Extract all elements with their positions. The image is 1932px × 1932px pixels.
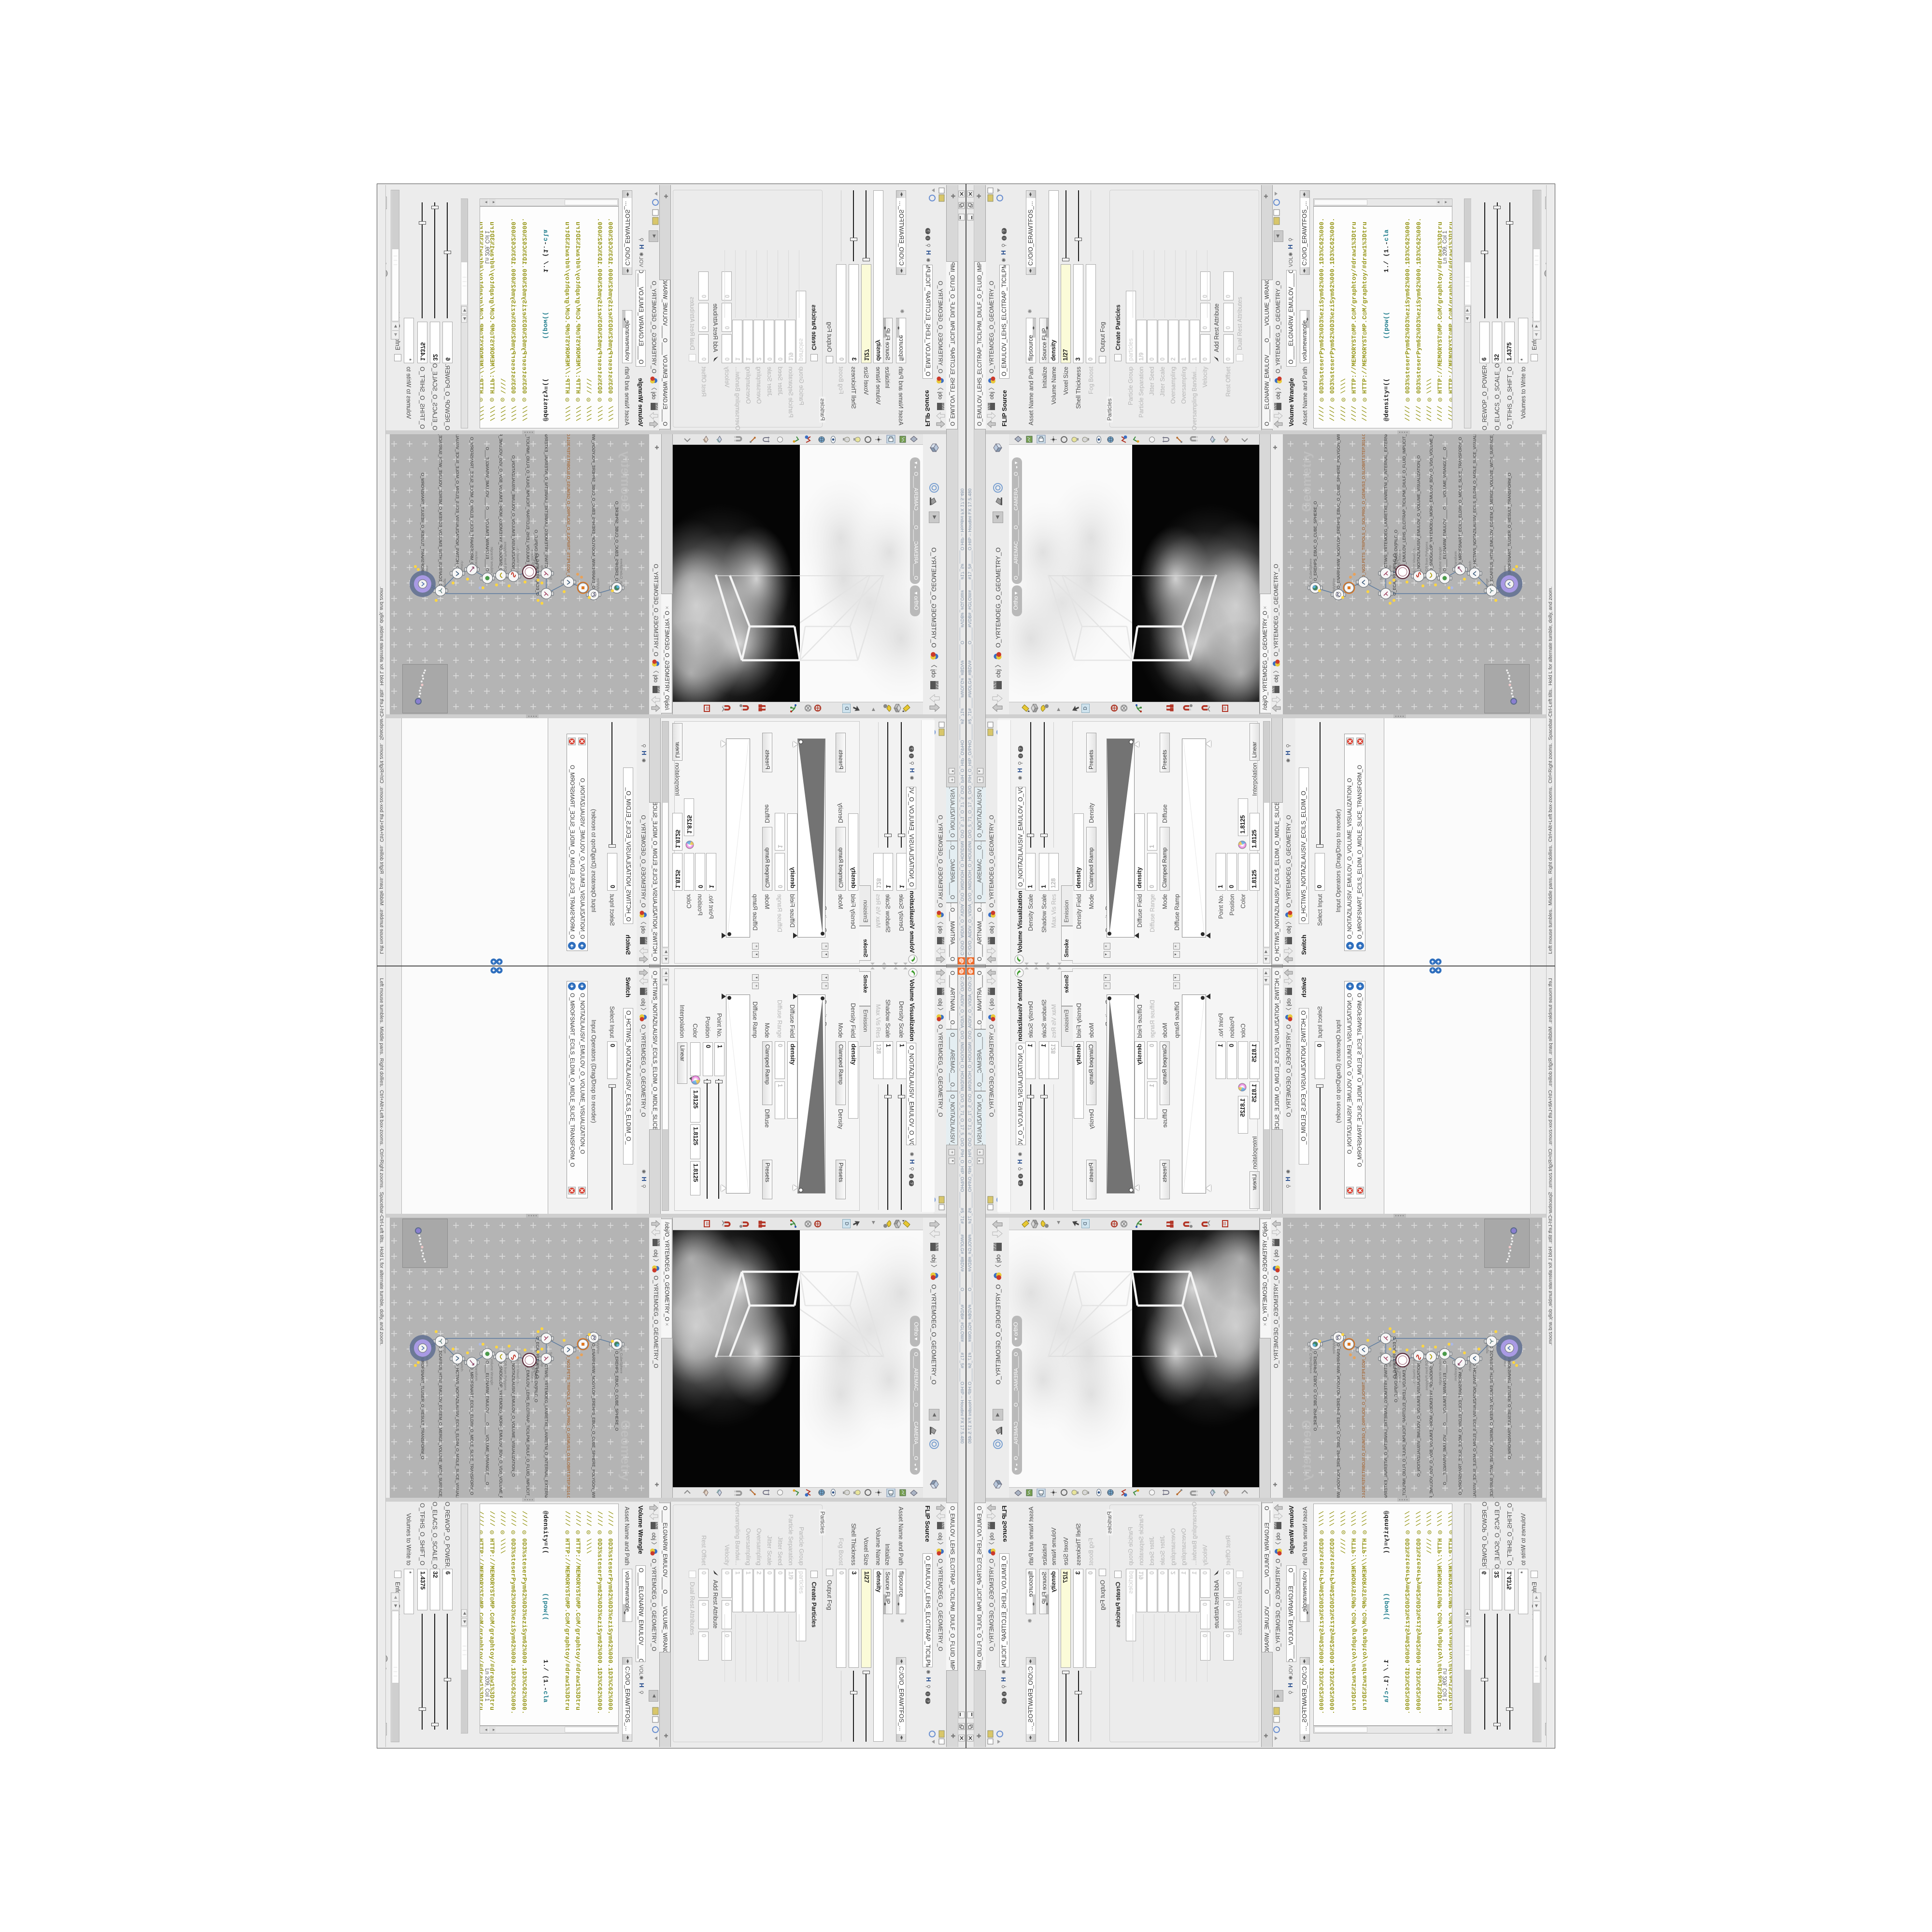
svg-text:O_MROFSNART_ECILS_ELDIM_O_MIDL: O_MROFSNART_ECILS_ELDIM_O_MIDLE_SLICE_TR…	[1458, 437, 1463, 566]
svg-text:O_MROFSNART_ECILS_ELDIM_O_MIDL: O_MROFSNART_ECILS_ELDIM_O_MIDLE_SLICE_TR…	[469, 1366, 474, 1495]
svg-text:Geometry: Geometry	[1299, 1420, 1314, 1481]
svg-text:Geometry: Geometry	[618, 1420, 633, 1481]
svg-text:O_EREHPS_EBUC_O_CUBE_SPHERE_O: O_EREHPS_EBUC_O_CUBE_SPHERE_O	[1313, 1351, 1318, 1431]
svg-text:O_MROFSNART_ECILS_ELDIM_O_MIDL: O_MROFSNART_ECILS_ELDIM_O_MIDLE_SLICE_TR…	[469, 437, 474, 566]
svg-text:O_HCTIWS_NOITAZILAUSIV_ECILS_E: O_HCTIWS_NOITAZILAUSIV_ECILS_ELDIM_O_MID…	[455, 1363, 460, 1498]
svg-text:O_SNOGILOP_YRTEMOEG_MORF_EMULO: O_SNOGILOP_YRTEMOEG_MORF_EMULOV_BDV_O_VD…	[498, 1361, 503, 1498]
svg-text:O_E[MULOV]PILC_O: O_E[MULOV]PILC_O	[1393, 1363, 1398, 1403]
svg-text:O_MROFSNART_ECILS_ELDIM_O_MIDL: O_MROFSNART_ECILS_ELDIM_O_MIDLE_SLICE_TR…	[1458, 1366, 1463, 1495]
svg-text:O_E[MULOV]PILC_O: O_E[MULOV]PILC_O	[1393, 529, 1398, 569]
svg-text:O_ECAFRUS_HTIW_EMULOV_EGREM_O_: O_ECAFRUS_HTIW_EMULOV_EGREM_O_MERGE_VOLU…	[438, 434, 443, 587]
svg-text:Geometry: Geometry	[1299, 451, 1314, 512]
svg-text:O_EREHPS_EBUC_O_CUBE_SPHERE_O: O_EREHPS_EBUC_O_CUBE_SPHERE_O	[614, 1351, 619, 1431]
svg-text:O_E[MULOV]PILC_O: O_E[MULOV]PILC_O	[534, 529, 539, 569]
svg-text:O_MROFSNART_TLUSER_O_RESULT_TR: O_MROFSNART_TLUSER_O_RESULT_TRANSFORM_O	[420, 472, 425, 580]
svg-text:O_MROFSNART_TLUSER_O_RESULT_TR: O_MROFSNART_TLUSER_O_RESULT_TRANSFORM_O	[1507, 1352, 1512, 1460]
svg-text:O_SNOGILOP_YRTEMOEG_MORF_EMULO: O_SNOGILOP_YRTEMOEG_MORF_EMULOV_BDV_O_VD…	[1429, 1361, 1434, 1498]
svg-text:.BO_NO3.PETS_TRIPOLS_O_SOLPRIG: .BO_NO3.PETS_TRIPOLS_O_SOLPRIG_O_GEMUS3_…	[566, 434, 571, 582]
svg-text:Volume Wrangle: Volume Wrangle	[490, 547, 494, 573]
svg-text:O_ENARFERIW_NOGYLOP_EREHPS_EBU: O_ENARFERIW_NOGYLOP_EREHPS_EBUC_O_CUBE_S…	[591, 1343, 596, 1498]
svg-text:O_SNOGILOP_YRTEMOEG_MORF_EMULO: O_SNOGILOP_YRTEMOEG_MORF_EMULOV_BDV_O_VD…	[1429, 434, 1434, 571]
svg-text:O_HCTIWS_NOITAZILAUSIV_ECILS_E: O_HCTIWS_NOITAZILAUSIV_ECILS_ELDIM_O_MID…	[1472, 1363, 1477, 1498]
svg-text:O_HCTIWS_NOITAZILAUSIV_ECILS_E: O_HCTIWS_NOITAZILAUSIV_ECILS_ELDIM_O_MID…	[455, 434, 460, 569]
svg-text:O____ELGNARW_EMULOV____O____VO: O____ELGNARW_EMULOV____O____VOLUME_WRANG…	[485, 447, 490, 571]
svg-text:.BO_NO3.PETS_TRIPOLS_O_SOLPRIG: .BO_NO3.PETS_TRIPOLS_O_SOLPRIG_O_GEMUS3_…	[566, 1350, 571, 1498]
svg-text:O_HCTIWS_YRTEMOEG_LANRETXE_LAN: O_HCTIWS_YRTEMOEG_LANRETXE_LANRETNI_O_IN…	[544, 434, 549, 576]
svg-text:Volume Wrangle: Volume Wrangle	[1438, 547, 1442, 573]
svg-text:VDB from Polygons: VDB from Polygons	[503, 541, 508, 573]
svg-text:O_NOITAZILAUSIV_EMULOV_O_VOLUM: O_NOITAZILAUSIV_EMULOV_O_VOLUME_VISUALIZ…	[511, 455, 516, 574]
svg-text:O_ENARFERIW_NOGYLOP_EREHPS_EBU: O_ENARFERIW_NOGYLOP_EREHPS_EBUC_O_CUBE_S…	[1336, 434, 1341, 589]
svg-text:O____ELGNARW_EMULOV____O____VO: O____ELGNARW_EMULOV____O____VOLUME_WRANG…	[485, 1361, 490, 1485]
svg-text:O_EMULOV_LEHS_ELCITRAP_TICILPM: O_EMULOV_LEHS_ELCITRAP_TICILPMI_DIULF_O_…	[1402, 434, 1406, 568]
svg-text:O_HCTIWS_NOITAZILAUSIV_ECILS_E: O_HCTIWS_NOITAZILAUSIV_ECILS_ELDIM_O_MID…	[1472, 434, 1477, 569]
svg-text:un_CubeSphere: un_CubeSphere	[619, 558, 624, 585]
svg-text:Geometry: Geometry	[618, 451, 633, 512]
svg-text:O_EMULOV_LEHS_ELCITRAP_TICILPM: O_EMULOV_LEHS_ELCITRAP_TICILPMI_DIULF_O_…	[526, 1364, 530, 1498]
svg-text:VDB from Polygons: VDB from Polygons	[503, 1359, 508, 1391]
svg-text:O_SNOGILOP_YRTEMOEG_MORF_EMULO: O_SNOGILOP_YRTEMOEG_MORF_EMULOV_BDV_O_VD…	[498, 434, 503, 571]
svg-text:O_MROFSNART_TLUSER_O_RESULT_TR: O_MROFSNART_TLUSER_O_RESULT_TRANSFORM_O	[1507, 472, 1512, 580]
svg-text:O_EMULOV_LEHS_ELCITRAP_TICILPM: O_EMULOV_LEHS_ELCITRAP_TICILPMI_DIULF_O_…	[1402, 1364, 1406, 1498]
svg-text:O____ELGNARW_EMULOV____O____VO: O____ELGNARW_EMULOV____O____VOLUME_WRANG…	[1442, 447, 1447, 571]
svg-text:Volume Wrangle: Volume Wrangle	[490, 1359, 494, 1385]
svg-text:un_CubeSphere: un_CubeSphere	[1308, 558, 1313, 585]
svg-text:O_HCTIWS_YRTEMOEG_LANRETXE_LAN: O_HCTIWS_YRTEMOEG_LANRETXE_LANRETNI_O_IN…	[544, 1356, 549, 1498]
svg-text:Volume Wrangle: Volume Wrangle	[1438, 1359, 1442, 1385]
svg-text:O_EREHPS_EBUC_O_CUBE_SPHERE_O: O_EREHPS_EBUC_O_CUBE_SPHERE_O	[614, 501, 619, 581]
svg-text:O_ECAFRUS_HTIW_EMULOV_EGREM_O_: O_ECAFRUS_HTIW_EMULOV_EGREM_O_MERGE_VOLU…	[438, 1345, 443, 1498]
svg-text:O_NOITAZILAUSIV_EMULOV_O_VOLUM: O_NOITAZILAUSIV_EMULOV_O_VOLUME_VISUALIZ…	[1416, 1358, 1421, 1477]
svg-text:O_ENARFERIW_NOGYLOP_EREHPS_EBU: O_ENARFERIW_NOGYLOP_EREHPS_EBUC_O_CUBE_S…	[1336, 1343, 1341, 1498]
svg-text:O_HCTIWS_YRTEMOEG_LANRETXE_LAN: O_HCTIWS_YRTEMOEG_LANRETXE_LANRETNI_O_IN…	[1383, 1356, 1388, 1498]
svg-text:O____ELGNARW_EMULOV____O____VO: O____ELGNARW_EMULOV____O____VOLUME_WRANG…	[1442, 1361, 1447, 1485]
svg-text:.BO_NO3.PETS_TRIPOLS_O_SOLPRIG: .BO_NO3.PETS_TRIPOLS_O_SOLPRIG_O_GEMUS3_…	[1361, 434, 1366, 582]
svg-text:O_NOITAZILAUSIV_EMULOV_O_VOLUM: O_NOITAZILAUSIV_EMULOV_O_VOLUME_VISUALIZ…	[1416, 455, 1421, 574]
svg-text:VDB from Polygons: VDB from Polygons	[1424, 1359, 1429, 1391]
svg-text:O_E[MULOV]PILC_O: O_E[MULOV]PILC_O	[534, 1363, 539, 1403]
svg-text:O_NOITAZILAUSIV_EMULOV_O_VOLUM: O_NOITAZILAUSIV_EMULOV_O_VOLUME_VISUALIZ…	[511, 1358, 516, 1477]
svg-text:VDB from Polygons: VDB from Polygons	[1424, 541, 1429, 573]
svg-text:O_ENARFERIW_NOGYLOP_EREHPS_EBU: O_ENARFERIW_NOGYLOP_EREHPS_EBUC_O_CUBE_S…	[591, 434, 596, 589]
svg-text:.BO_NO3.PETS_TRIPOLS_O_SOLPRIG: .BO_NO3.PETS_TRIPOLS_O_SOLPRIG_O_GEMUS3_…	[1361, 1350, 1366, 1498]
svg-text:O_MROFSNART_TLUSER_O_RESULT_TR: O_MROFSNART_TLUSER_O_RESULT_TRANSFORM_O	[420, 1352, 425, 1460]
svg-text:O_ECAFRUS_HTIW_EMULOV_EGREM_O_: O_ECAFRUS_HTIW_EMULOV_EGREM_O_MERGE_VOLU…	[1489, 434, 1494, 587]
svg-text:O_HCTIWS_YRTEMOEG_LANRETXE_LAN: O_HCTIWS_YRTEMOEG_LANRETXE_LANRETNI_O_IN…	[1383, 434, 1388, 576]
svg-text:O_EREHPS_EBUC_O_CUBE_SPHERE_O: O_EREHPS_EBUC_O_CUBE_SPHERE_O	[1313, 501, 1318, 581]
svg-text:un_CubeSphere: un_CubeSphere	[619, 1347, 624, 1374]
svg-text:O_ECAFRUS_HTIW_EMULOV_EGREM_O_: O_ECAFRUS_HTIW_EMULOV_EGREM_O_MERGE_VOLU…	[1489, 1345, 1494, 1498]
svg-text:O_EMULOV_LEHS_ELCITRAP_TICILPM: O_EMULOV_LEHS_ELCITRAP_TICILPMI_DIULF_O_…	[526, 434, 530, 568]
svg-text:un_CubeSphere: un_CubeSphere	[1308, 1347, 1313, 1374]
